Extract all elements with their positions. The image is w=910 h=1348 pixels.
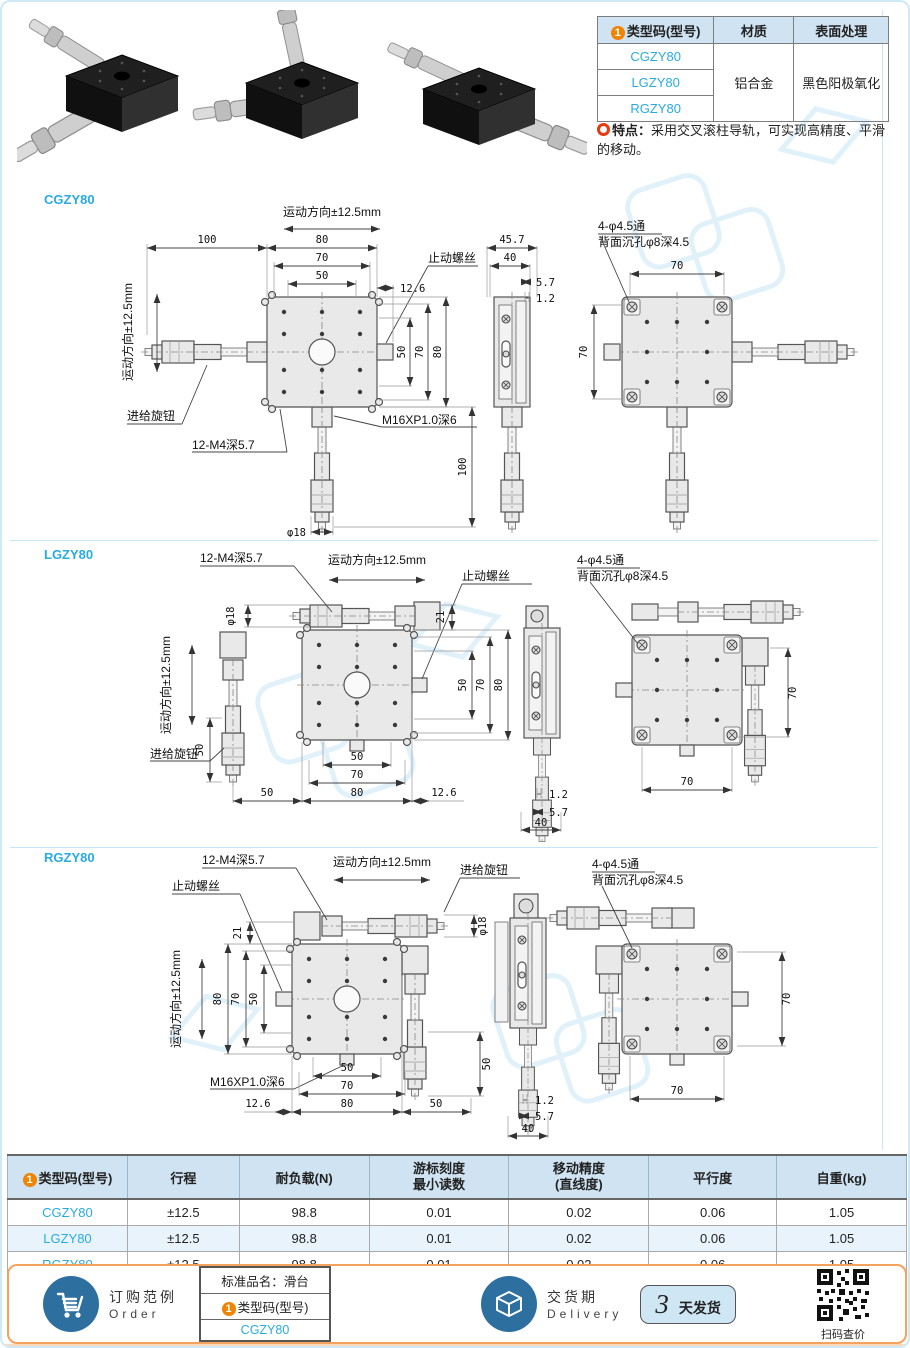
delivery-unit: 天发货 — [679, 1298, 721, 1318]
order-box-typecode: 1类型码(型号) — [201, 1294, 329, 1320]
spec-cell: 1.05 — [777, 1226, 907, 1252]
spec-model-lgzy80[interactable]: LGZY80 — [8, 1226, 128, 1252]
lg-dim-h80: 80 — [493, 679, 505, 692]
model-link-rgzy80[interactable]: RGZY80 — [598, 96, 714, 122]
spec-cell: 0.01 — [369, 1226, 509, 1252]
cgzy80-right-view: 4-φ4.5通 背面沉孔φ8深4.5 70 70 — [578, 219, 858, 533]
lg-dim-40: 40 — [535, 817, 548, 829]
rg-dim-5-7: 5.7 — [535, 1111, 554, 1123]
order-title: 订购范例 — [109, 1287, 177, 1307]
lg-dim-rv70b: 70 — [681, 776, 694, 788]
section-label-cgzy80: CGZY80 — [44, 192, 95, 207]
lg-dim-bottom50: 50 — [261, 787, 274, 799]
lg-dim-dia18: φ18 — [225, 607, 237, 626]
delivery-days: 3 — [655, 1291, 669, 1318]
lg-dim-h70: 70 — [475, 679, 487, 692]
badge-1-icon: 1 — [23, 1173, 37, 1187]
spec-cell: ±12.5 — [127, 1199, 239, 1226]
cg-cbore-label: 背面沉孔φ8深4.5 — [598, 235, 689, 249]
cg-dim-5-7: 5.7 — [536, 277, 555, 289]
spec-cell: 0.02 — [509, 1199, 649, 1226]
spec-header-model: 1类型码(型号) — [8, 1155, 128, 1199]
rgzy80-front-view: 12-M4深5.7 运动方向±12.5mm 进给旋钮 止动螺丝 21 φ18 8… — [168, 854, 520, 1114]
cg-dim-45-7: 45.7 — [499, 234, 524, 246]
lgzy80-front-view: 12-M4深5.7 运动方向±12.5mm 止动螺丝 φ18 21 50 70 … — [150, 551, 532, 803]
spec-cell: 1.05 — [777, 1199, 907, 1226]
cg-dim-100: 100 — [198, 234, 217, 246]
rgzy80-right-view: 4-φ4.5通 背面沉孔φ8深4.5 70 70 — [546, 857, 793, 1101]
lg-dim-5-7: 5.7 — [549, 807, 568, 819]
lg-dim-b70: 70 — [351, 769, 364, 781]
cg-dim-rv70v: 70 — [578, 346, 590, 359]
spec-header-vernier: 游标刻度最小读数 — [369, 1155, 509, 1199]
cg-dim-h80: 80 — [432, 346, 444, 359]
models-table: 1类型码(型号) 材质 表面处理 CGZY80 铝合金 黑色阳极氧化 LGZY8… — [597, 16, 889, 122]
rg-holes-label: 4-φ4.5通 — [592, 857, 639, 871]
lgzy80-right-view: 4-φ4.5通 背面沉孔φ8深4.5 70 70 — [577, 553, 804, 792]
rg-dim-b50: 50 — [341, 1062, 354, 1074]
footer-bar: 订购范例 Order 标准品名：滑台 1类型码(型号) CGZY80 交货期 D… — [7, 1264, 907, 1344]
badge-1-icon: 1 — [222, 1302, 236, 1316]
cg-dim-1-2: 1.2 — [536, 293, 555, 305]
models-table-header-finish: 表面处理 — [794, 17, 889, 44]
delivery-subtitle: Delivery — [547, 1307, 622, 1321]
rg-dim-12-6: 12.6 — [245, 1098, 270, 1110]
cg-dim-rv70h: 70 — [671, 260, 684, 272]
cg-m16-label: M16XP1.0深6 — [382, 413, 457, 427]
delivery-title: 交货期 — [547, 1287, 622, 1307]
feature-bullet-icon — [597, 123, 610, 136]
cg-dim-50: 50 — [316, 270, 329, 282]
cg-stop-screw-label: 止动螺丝 — [428, 251, 476, 265]
spec-header-weight: 自重(kg) — [777, 1155, 907, 1199]
lg-dim-b80: 80 — [351, 787, 364, 799]
rg-dim-mic50: 50 — [481, 1058, 493, 1071]
model-link-lgzy80[interactable]: LGZY80 — [598, 70, 714, 96]
rg-dim-1-2: 1.2 — [535, 1095, 554, 1107]
cgzy80-front-view: 运动方向±12.5mm 100 80 70 50 止动螺丝 12.6 50 70 — [120, 204, 478, 537]
spec-cell: 98.8 — [239, 1199, 369, 1226]
right-border-line — [882, 10, 883, 1150]
rg-dim-40: 40 — [522, 1123, 535, 1135]
lgzy80-drawing: 12-M4深5.7 运动方向±12.5mm 止动螺丝 φ18 21 50 70 … — [32, 550, 882, 842]
lg-thread12-label: 12-M4深5.7 — [200, 551, 263, 565]
cg-dim-40: 40 — [504, 252, 517, 264]
rg-dim-b80: 80 — [341, 1098, 354, 1110]
qr-code[interactable] — [815, 1267, 871, 1323]
section-label-lgzy80: LGZY80 — [44, 547, 93, 562]
delivery-caption: 交货期 Delivery — [547, 1287, 622, 1321]
rg-dim-21: 21 — [232, 927, 244, 940]
section-divider-2 — [10, 847, 878, 848]
order-example-box: 标准品名：滑台 1类型码(型号) CGZY80 — [199, 1266, 331, 1342]
lg-cbore-label: 背面沉孔φ8深4.5 — [577, 569, 668, 583]
spec-cell: 0.02 — [509, 1226, 649, 1252]
order-box-model[interactable]: CGZY80 — [201, 1320, 329, 1340]
cart-icon — [43, 1276, 99, 1332]
rg-dim-b70: 70 — [341, 1080, 354, 1092]
lg-dim-rv70v: 70 — [787, 687, 799, 700]
rgzy80-side-view: 1.2 5.7 40 — [495, 894, 554, 1138]
finish-cell: 黑色阳极氧化 — [794, 44, 889, 122]
rg-dim-rv70v: 70 — [781, 993, 793, 1006]
cg-holes-label: 4-φ4.5通 — [598, 219, 645, 233]
product-photo-3 — [385, 38, 587, 159]
rg-dim-h50: 50 — [248, 993, 260, 1006]
spec-header-load: 耐负载(N) — [239, 1155, 369, 1199]
rg-thread12-label: 12-M4深5.7 — [202, 854, 265, 867]
cg-motion-h-label: 运动方向±12.5mm — [283, 204, 381, 219]
section-label-rgzy80: RGZY80 — [44, 850, 95, 865]
rg-dim-h70: 70 — [230, 993, 242, 1006]
spec-model-cgzy80[interactable]: CGZY80 — [8, 1199, 128, 1226]
lg-feed-knob-label: 进给旋钮 — [150, 746, 198, 761]
parcel-icon — [481, 1276, 537, 1332]
order-caption: 订购范例 Order — [109, 1287, 177, 1321]
cg-dim-h50: 50 — [396, 346, 408, 359]
spec-header-stroke: 行程 — [127, 1155, 239, 1199]
feature-label: 特点： — [612, 123, 651, 138]
cg-dim-h70: 70 — [414, 346, 426, 359]
order-box-product: 标准品名：滑台 — [201, 1268, 329, 1294]
lg-motion-h-label: 运动方向±12.5mm — [328, 552, 426, 567]
rg-feed-knob-label: 进给旋钮 — [460, 862, 508, 877]
rg-motion-h-label: 运动方向±12.5mm — [333, 854, 431, 869]
spec-cell: 98.8 — [239, 1226, 369, 1252]
cgzy80-drawing: 运动方向±12.5mm 100 80 70 50 止动螺丝 12.6 50 70 — [32, 202, 882, 537]
spec-header-accuracy: 移动精度(直线度) — [509, 1155, 649, 1199]
spec-row-lgzy80: LGZY80 ±12.5 98.8 0.01 0.02 0.06 1.05 — [8, 1226, 907, 1252]
spec-row-cgzy80: CGZY80 ±12.5 98.8 0.01 0.02 0.06 1.05 — [8, 1199, 907, 1226]
lg-holes-label: 4-φ4.5通 — [577, 553, 624, 567]
lgzy80-side-view: 1.2 5.7 40 — [521, 606, 568, 842]
product-photo-1 — [17, 15, 178, 167]
order-subtitle: Order — [109, 1307, 177, 1321]
rg-stop-screw-label: 止动螺丝 — [172, 879, 220, 893]
spec-cell: ±12.5 — [127, 1226, 239, 1252]
feature-note: 特点：采用交叉滚柱导轨，可实现高精度、平滑的移动。 — [597, 122, 897, 160]
product-photo-2 — [192, 10, 358, 139]
lg-motion-v-label: 运动方向±12.5mm — [158, 636, 173, 734]
product-photos — [17, 10, 587, 168]
spec-cell: 0.06 — [649, 1199, 777, 1226]
rg-dim-rv70b: 70 — [671, 1085, 684, 1097]
rg-dim-right50: 50 — [430, 1098, 443, 1110]
cg-feed-knob-label: 进给旋钮 — [127, 408, 175, 423]
spec-cell: 0.01 — [369, 1199, 509, 1226]
lg-stop-screw-label: 止动螺丝 — [462, 569, 510, 583]
lg-dim-h50: 50 — [457, 679, 469, 692]
cg-dim-mic100: 100 — [457, 458, 469, 477]
model-link-cgzy80[interactable]: CGZY80 — [598, 44, 714, 70]
spec-header-parallelism: 平行度 — [649, 1155, 777, 1199]
delivery-days-chip: 3 天发货 — [640, 1285, 736, 1324]
cg-thread12-label: 12-M4深5.7 — [192, 438, 255, 452]
cg-dim-80: 80 — [316, 234, 329, 246]
cgzy80-side-view: 45.7 40 5.7 1.2 — [487, 234, 555, 533]
lg-dim-21: 21 — [435, 611, 447, 624]
spec-table: 1类型码(型号) 行程 耐负载(N) 游标刻度最小读数 移动精度(直线度) 平行… — [7, 1154, 907, 1279]
models-table-header-material: 材质 — [714, 17, 794, 44]
cg-dim-70: 70 — [316, 252, 329, 264]
qr-block: 扫码查价 — [815, 1267, 871, 1342]
cg-dim-dia18: φ18 — [287, 527, 306, 537]
spec-cell: 0.06 — [649, 1226, 777, 1252]
material-cell: 铝合金 — [714, 44, 794, 122]
section-divider-1 — [10, 540, 878, 541]
qr-caption: 扫码查价 — [815, 1326, 871, 1342]
cg-motion-v-label: 运动方向±12.5mm — [120, 283, 135, 381]
lg-dim-b50: 50 — [351, 751, 364, 763]
rg-m16-label: M16XP1.0深6 — [210, 1075, 285, 1089]
models-table-header-model: 1类型码(型号) — [598, 17, 714, 44]
rg-cbore-label: 背面沉孔φ8深4.5 — [592, 873, 683, 887]
catalog-page: 1类型码(型号) 材质 表面处理 CGZY80 铝合金 黑色阳极氧化 LGZY8… — [0, 0, 910, 1348]
rg-dim-h80: 80 — [212, 993, 224, 1006]
rgzy80-drawing: 12-M4深5.7 运动方向±12.5mm 进给旋钮 止动螺丝 21 φ18 8… — [32, 854, 882, 1150]
lg-dim-1-2: 1.2 — [549, 789, 568, 801]
lg-dim-12-6: 12.6 — [431, 787, 456, 799]
cg-dim-12-6: 12.6 — [400, 283, 425, 295]
badge-1-icon: 1 — [611, 26, 625, 40]
rg-dim-dia18: φ18 — [477, 917, 489, 936]
rg-motion-v-label: 运动方向±12.5mm — [168, 950, 183, 1048]
bottom-edge-strip — [2, 1344, 910, 1348]
